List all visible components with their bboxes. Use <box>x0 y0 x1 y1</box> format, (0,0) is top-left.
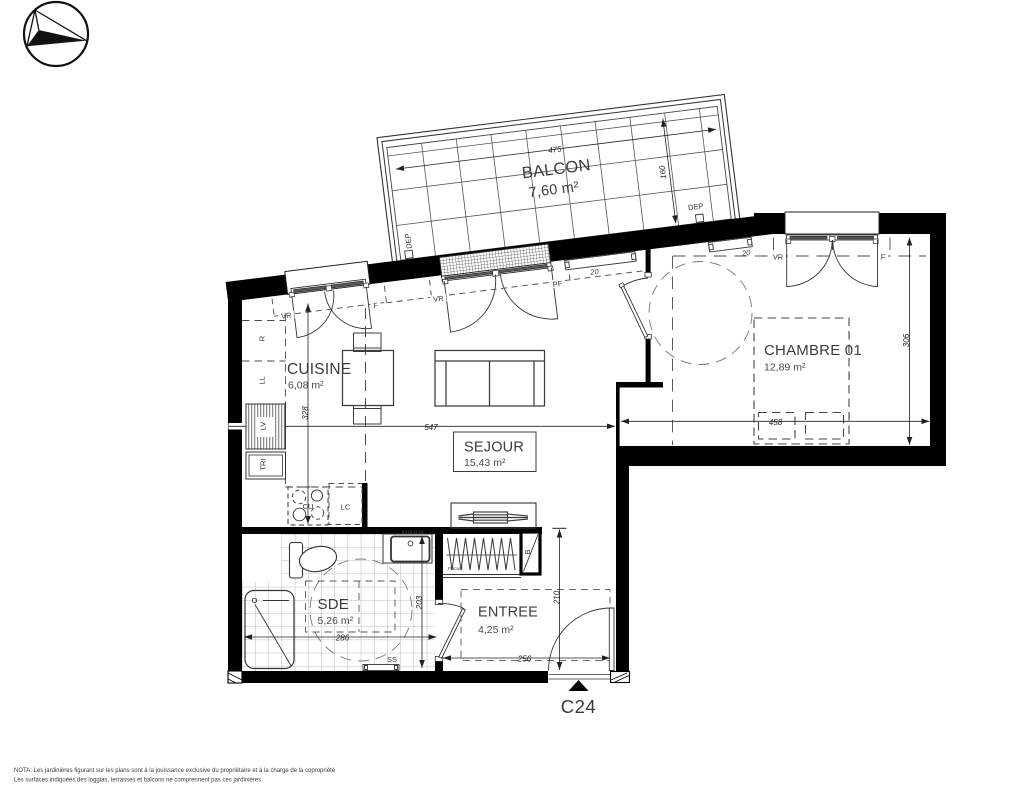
svg-text:160: 160 <box>658 164 669 179</box>
svg-text:DEP: DEP <box>403 233 414 249</box>
svg-text:DEP: DEP <box>687 201 703 212</box>
svg-text:15,43 m²: 15,43 m² <box>464 457 506 469</box>
svg-text:VR: VR <box>281 311 293 321</box>
svg-text:NOTA: Les jardinières figurant: NOTA: Les jardinières figurant sur les p… <box>14 768 336 774</box>
svg-text:SS: SS <box>387 655 397 664</box>
svg-text:B: B <box>523 549 532 554</box>
svg-text:12,89 m²: 12,89 m² <box>764 362 806 374</box>
svg-text:475: 475 <box>548 144 563 155</box>
svg-text:TRI: TRI <box>259 458 268 470</box>
svg-text:CHAMBRE 01: CHAMBRE 01 <box>764 342 862 359</box>
svg-text:203: 203 <box>415 595 424 610</box>
svg-text:4,25 m²: 4,25 m² <box>478 624 514 636</box>
svg-text:SEJOUR: SEJOUR <box>464 440 524 456</box>
svg-text:5,26 m²: 5,26 m² <box>318 615 354 627</box>
svg-text:Les surfaces indiquées des log: Les surfaces indiquées des loggias, terr… <box>14 778 261 784</box>
svg-text:CUISINE: CUISINE <box>287 361 351 378</box>
svg-text:LV: LV <box>259 422 268 431</box>
svg-text:F: F <box>881 253 886 262</box>
svg-text:C24: C24 <box>561 696 596 717</box>
svg-text:ENTREE: ENTREE <box>478 605 538 621</box>
svg-text:LL: LL <box>258 376 267 384</box>
svg-text:547: 547 <box>424 423 438 432</box>
svg-text:R: R <box>258 335 267 341</box>
svg-text:210: 210 <box>553 590 562 605</box>
svg-text:458: 458 <box>769 418 783 427</box>
svg-text:PF: PF <box>552 279 563 289</box>
svg-text:286: 286 <box>335 634 350 643</box>
svg-text:VR: VR <box>773 253 784 262</box>
svg-text:Placard: Placard <box>448 566 463 571</box>
svg-text:SDE: SDE <box>318 596 349 613</box>
svg-text:328: 328 <box>301 406 310 420</box>
svg-text:VR: VR <box>433 294 445 304</box>
svg-text:306: 306 <box>902 333 911 347</box>
svg-text:6,08 m²: 6,08 m² <box>288 380 324 392</box>
svg-text:256: 256 <box>517 655 532 664</box>
svg-text:LC: LC <box>341 503 351 512</box>
